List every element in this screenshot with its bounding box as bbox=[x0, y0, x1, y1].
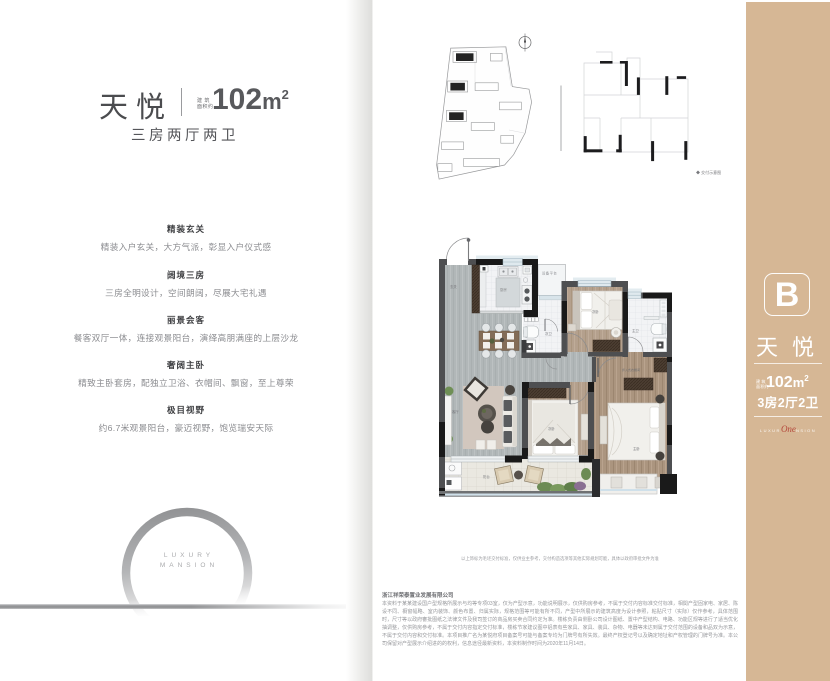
svg-text:厨房: 厨房 bbox=[500, 287, 507, 292]
svg-text:主卧: 主卧 bbox=[633, 446, 640, 451]
svg-text:客厅: 客厅 bbox=[452, 409, 459, 414]
svg-text:设备平台: 设备平台 bbox=[542, 271, 557, 276]
svg-text:次卧: 次卧 bbox=[548, 426, 555, 431]
svg-text:玄关: 玄关 bbox=[450, 284, 457, 289]
svg-text:步入式衣帽间: 步入式衣帽间 bbox=[622, 367, 640, 372]
svg-text:次卧: 次卧 bbox=[592, 309, 599, 314]
svg-text:阳台: 阳台 bbox=[483, 474, 490, 479]
svg-text:◆ 交付示意图: ◆ 交付示意图 bbox=[696, 169, 721, 175]
svg-text:次卫: 次卫 bbox=[545, 331, 552, 336]
svg-text:主卫: 主卫 bbox=[632, 328, 639, 333]
